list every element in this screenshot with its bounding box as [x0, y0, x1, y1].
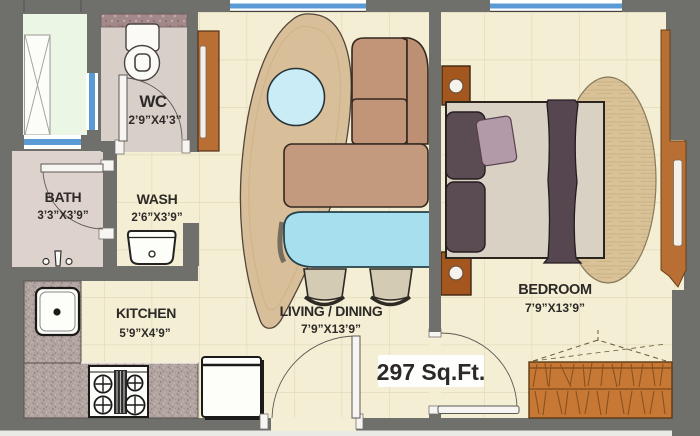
svg-text:BATH: BATH	[45, 189, 82, 205]
svg-text:297 Sq.Ft.: 297 Sq.Ft.	[377, 359, 486, 385]
svg-text:7’9”X13’9”: 7’9”X13’9”	[525, 301, 585, 315]
svg-text:WC: WC	[139, 92, 167, 111]
svg-text:KITCHEN: KITCHEN	[116, 305, 176, 321]
svg-text:5’9”X4’9”: 5’9”X4’9”	[119, 328, 170, 340]
svg-text:2’9”X4’3”: 2’9”X4’3”	[128, 113, 181, 127]
svg-text:7’9”X13’9”: 7’9”X13’9”	[301, 322, 361, 336]
svg-text:3’3”X3’9”: 3’3”X3’9”	[37, 210, 88, 222]
svg-text:BEDROOM: BEDROOM	[518, 282, 592, 298]
svg-text:2’6”X3’9”: 2’6”X3’9”	[131, 212, 182, 224]
svg-text:LIVING / DINING: LIVING / DINING	[280, 303, 383, 319]
svg-text:WASH: WASH	[137, 191, 178, 207]
